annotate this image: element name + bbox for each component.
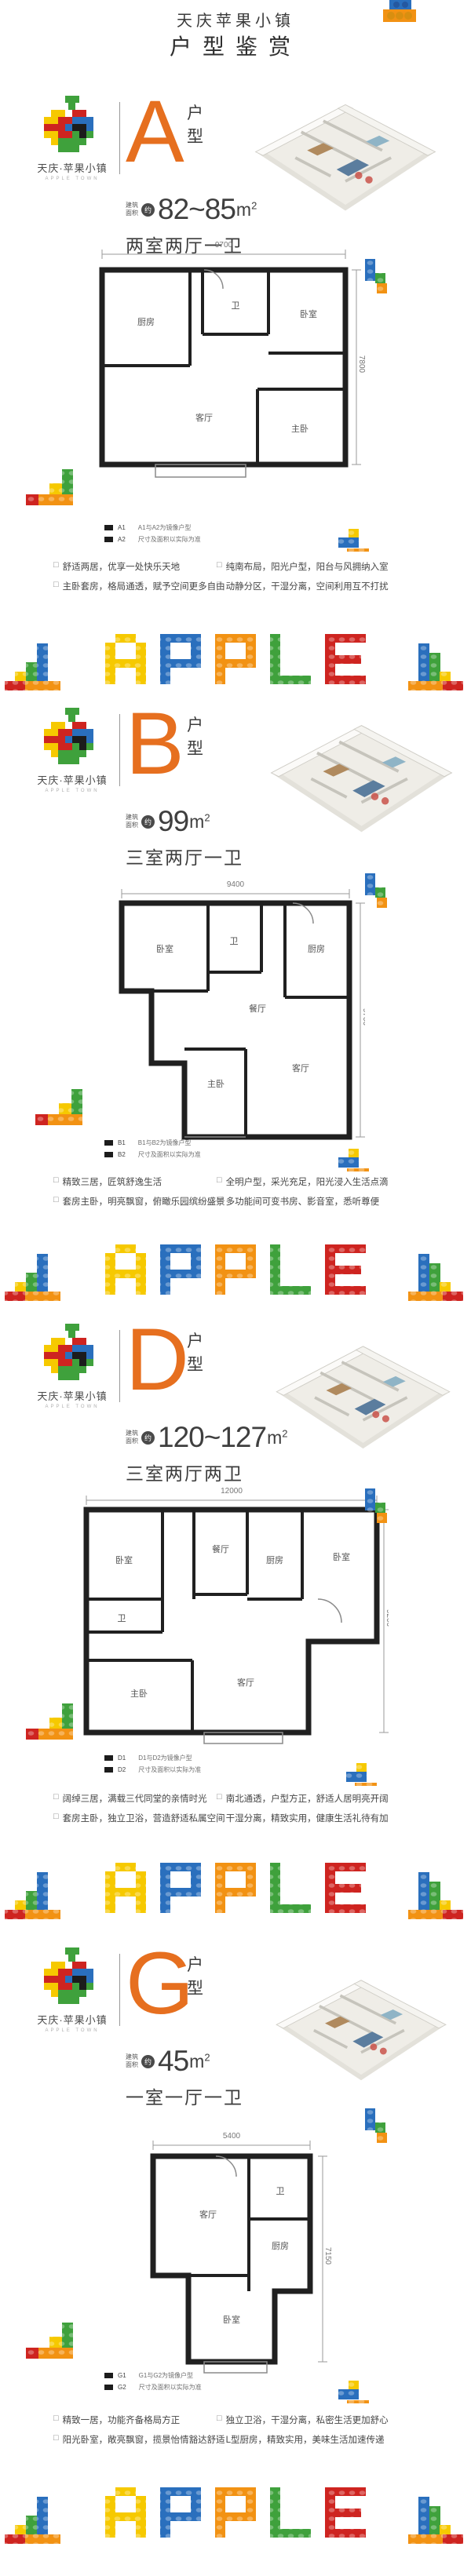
legend-square-icon — [104, 1140, 113, 1146]
svg-text:9200: 9200 — [385, 1609, 389, 1627]
feature-item: □舒适两居，优享一处快乐天地 — [53, 560, 217, 573]
apple-logo-icon — [43, 1324, 101, 1380]
legend-row: A1 A1与A2为镜像户型 — [104, 523, 201, 532]
svg-text:餐厅: 餐厅 — [249, 1003, 266, 1014]
floor-plan-d: 12000 9200 卧室 餐厅 厨房 卧室 卫 主卧 客厅 — [75, 1481, 389, 1756]
section-unit-b: 天庆·苹果小镇 APPLE TOWN B 户型 建筑面积 约 99 m2 三室两… — [0, 705, 471, 1230]
checkbox-icon: □ — [53, 1812, 59, 1821]
unit-type-label: 户型 — [187, 714, 204, 762]
lego-side-icon — [365, 1488, 387, 1523]
section-unit-d: 天庆·苹果小镇 APPLE TOWN D 户型 建筑面积 约 120~127 m… — [0, 1321, 471, 1846]
lego-stair-icon — [35, 1089, 90, 1125]
feature-item: □套房主卧，独立卫浴，营造舒适私属空间 — [53, 1812, 217, 1824]
dimension-right: 9200 — [379, 1510, 389, 1733]
brand-name: 天庆·苹果小镇 — [31, 160, 113, 175]
brand-name: 天庆·苹果小镇 — [31, 1388, 113, 1403]
dimension-top: 9400 — [122, 880, 349, 898]
lego-mini-icon — [336, 1149, 369, 1172]
apple-lego-banner — [0, 1847, 471, 1929]
approx-badge: 约 — [141, 203, 155, 217]
brand-logo: 天庆·苹果小镇 APPLE TOWN — [31, 1947, 113, 2033]
svg-text:12000: 12000 — [221, 1487, 243, 1496]
legend-row: B1 B1与B2为镜像户型 — [104, 1139, 201, 1147]
floor-plan-b: 9400 9700 卧室 卫 厨房 餐厅 主卧 客厅 — [106, 873, 365, 1144]
brand-name-en: APPLE TOWN — [31, 177, 113, 181]
unit-type-label: 户型 — [187, 1954, 204, 2002]
section-unit-g: 天庆·苹果小镇 APPLE TOWN G 户型 建筑面积 约 45 m2 一室一… — [0, 1944, 471, 2470]
feature-item: □动静分区，干湿分离，空间利用互不打扰 — [217, 580, 446, 592]
area-prefix-label: 建筑面积 — [126, 1430, 138, 1445]
room-labels: 卧室 卫 厨房 餐厅 主卧 客厅 — [156, 937, 325, 1089]
unit-letter: B — [126, 700, 184, 788]
feature-item: □南北通透，户型方正，舒适人居明亮开阔 — [217, 1792, 446, 1805]
legend-square-icon — [104, 1755, 113, 1761]
unit-3d-render — [239, 99, 451, 217]
checkbox-icon: □ — [53, 2433, 59, 2443]
approx-badge: 约 — [141, 2055, 155, 2068]
svg-text:卧室: 卧室 — [223, 2314, 240, 2325]
approx-badge: 约 — [141, 815, 155, 829]
apple-logo-icon — [43, 708, 101, 764]
brand-name: 天庆·苹果小镇 — [31, 772, 113, 787]
lego-side-icon — [365, 2108, 387, 2143]
brand-name-en: APPLE TOWN — [31, 1405, 113, 1409]
room-labels: 卧室 餐厅 厨房 卧室 卫 主卧 客厅 — [115, 1543, 350, 1699]
dimension-right: 9700 — [356, 903, 365, 1137]
brand-logo: 天庆·苹果小镇 APPLE TOWN — [31, 708, 113, 793]
area-value: 82~85 — [158, 193, 235, 226]
checkbox-icon: □ — [217, 2414, 222, 2423]
area-prefix-label: 建筑面积 — [126, 2053, 138, 2069]
checkbox-icon: □ — [53, 560, 59, 570]
unit-3d-render — [265, 706, 458, 851]
feature-list: □精致一居，功能齐备格局方正 □阳光卧室，敞亮飘窗，揽景怡情豁达舒适 □独立卫浴… — [53, 2414, 446, 2446]
unit-3d-render — [271, 1954, 451, 2107]
legend-square-icon — [104, 2373, 113, 2378]
apple-lego-banner — [0, 618, 471, 701]
unit-letter: A — [126, 88, 184, 176]
feature-item: □多功能间可变书房、影音室，悉听尊便 — [217, 1195, 446, 1208]
checkbox-icon: □ — [53, 580, 59, 589]
plan-walls — [153, 2156, 310, 2373]
apple-lego-banner — [0, 1229, 471, 1311]
svg-text:客厅: 客厅 — [292, 1062, 309, 1073]
lego-mini-icon — [344, 1763, 377, 1787]
svg-text:9400: 9400 — [227, 880, 245, 889]
feature-item: □全明户型，采光充足，阳光浸入生活点滴 — [217, 1175, 446, 1188]
svg-text:厨房: 厨房 — [272, 2241, 289, 2251]
area-row: 建筑面积 约 45 m2 — [126, 2045, 210, 2078]
plan-walls — [102, 270, 345, 477]
svg-text:卫: 卫 — [230, 937, 239, 946]
svg-text:卫: 卫 — [118, 1614, 126, 1623]
svg-text:9700: 9700 — [215, 241, 233, 250]
checkbox-icon: □ — [217, 2433, 222, 2443]
svg-text:客厅: 客厅 — [237, 1677, 254, 1688]
checkbox-icon: □ — [217, 580, 222, 589]
plan-legend: G1 G1与G2为镜像户型 G2 尺寸及面积以实际为准 — [104, 2371, 202, 2395]
area-row: 建筑面积 约 99 m2 — [126, 805, 210, 838]
brand-name: 天庆·苹果小镇 — [31, 2012, 113, 2027]
lego-side-icon — [365, 873, 387, 908]
legend-row: A2 尺寸及面积以实际为准 — [104, 535, 201, 544]
plan-legend: D1 D1与D2为镜像户型 D2 尺寸及面积以实际为准 — [104, 1754, 201, 1777]
svg-text:卧室: 卧室 — [333, 1551, 350, 1562]
section-unit-a: 天庆·苹果小镇 APPLE TOWN A 户型 建筑面积 约 82~85 m2 … — [0, 93, 471, 618]
lego-stair-icon — [26, 2323, 81, 2359]
apple-logo-icon — [43, 1947, 101, 2004]
feature-item: □独立卫浴，干湿分离，私密生活更加舒心 — [217, 2414, 446, 2426]
poster-page: 天庆苹果小镇 户型鉴赏 天庆·苹果小镇 APPLE TOWN A 户型 建筑面积… — [0, 0, 471, 2576]
checkbox-icon: □ — [53, 1792, 59, 1802]
checkbox-icon: □ — [217, 560, 222, 570]
area-row: 建筑面积 约 120~127 m2 — [126, 1421, 287, 1454]
area-row: 建筑面积 约 82~85 m2 — [126, 193, 257, 226]
brand-logo: 天庆·苹果小镇 APPLE TOWN — [31, 96, 113, 181]
svg-text:厨房: 厨房 — [308, 944, 325, 954]
legend-square-icon — [104, 525, 113, 530]
vertical-divider — [119, 714, 120, 786]
apple-lego-banner — [0, 2472, 471, 2554]
lego-stair-icon — [26, 469, 81, 505]
checkbox-icon: □ — [53, 1195, 59, 1204]
unit-type-label: 户型 — [187, 102, 204, 150]
unit-letter: G — [126, 1940, 194, 2028]
area-prefix-label: 建筑面积 — [126, 814, 138, 829]
feature-item: □主卧套房，格局通透，赋予空间更多自由 — [53, 580, 217, 592]
svg-text:9700: 9700 — [361, 1008, 365, 1026]
lego-mini-icon — [336, 2381, 369, 2404]
svg-text:卧室: 卧室 — [300, 308, 317, 319]
vertical-divider — [119, 1954, 120, 2026]
feature-item: □精致一居，功能齐备格局方正 — [53, 2414, 217, 2426]
dimension-top: 12000 — [86, 1487, 377, 1505]
unit-type-label: 户型 — [187, 1330, 204, 1378]
legend-row: G1 G1与G2为镜像户型 — [104, 2371, 202, 2380]
svg-text:卫: 卫 — [276, 2187, 285, 2196]
brand-name-en: APPLE TOWN — [31, 789, 113, 793]
svg-text:卧室: 卧室 — [115, 1554, 133, 1565]
area-prefix-label: 建筑面积 — [126, 202, 138, 217]
brand-name-en: APPLE TOWN — [31, 2028, 113, 2033]
area-value: 99 — [158, 805, 188, 838]
vertical-divider — [119, 1330, 120, 1402]
legend-square-icon — [104, 537, 113, 542]
feature-list: □舒适两居，优享一处快乐天地 □主卧套房，格局通透，赋予空间更多自由 □纯南布局… — [53, 560, 446, 592]
svg-text:客厅: 客厅 — [195, 412, 213, 423]
feature-item: □纯南布局，阳光户型，阳台与风拥纳入室 — [217, 560, 446, 573]
checkbox-icon: □ — [53, 2414, 59, 2423]
plan-legend: A1 A1与A2为镜像户型 A2 尺寸及面积以实际为准 — [104, 523, 201, 547]
page-subtitle: 户型鉴赏 — [0, 30, 471, 61]
floor-plan-a: 9700 7800 厨房 卫 卧室 客厅 主卧 — [86, 234, 369, 505]
svg-text:主卧: 主卧 — [130, 1689, 148, 1699]
legend-row: B2 尺寸及面积以实际为准 — [104, 1150, 201, 1159]
area-unit: m2 — [267, 1427, 287, 1448]
feature-item: □L型厨房，精致实用，美味生活加速传递 — [217, 2433, 446, 2446]
lego-side-icon — [365, 259, 387, 293]
area-value: 45 — [158, 2045, 188, 2078]
svg-text:卫: 卫 — [232, 301, 240, 311]
feature-item: □阳光卧室，敞亮飘窗，揽景怡情豁达舒适 — [53, 2433, 217, 2446]
room-labels: 厨房 卫 卧室 客厅 主卧 — [137, 301, 317, 434]
feature-item: □套房主卧，明亮飘窗，俯瞰乐园缤纷盛景 — [53, 1195, 217, 1208]
area-value: 120~127 — [158, 1421, 266, 1454]
feature-item: □阔绰三居，满载三代同堂的亲情时光 — [53, 1792, 217, 1805]
floor-plan-g: 5400 7150 客厅 卫 厨房 卧室 — [130, 2125, 334, 2388]
feature-item: □精致三居，匠筑舒逸生活 — [53, 1175, 217, 1188]
rooms-summary: 三室两厅一卫 — [126, 843, 243, 869]
checkbox-icon: □ — [53, 1175, 59, 1185]
unit-letter: D — [126, 1316, 189, 1404]
feature-list: □阔绰三居，满载三代同堂的亲情时光 □套房主卧，独立卫浴，营造舒适私属空间 □南… — [53, 1792, 446, 1824]
vertical-divider — [119, 102, 120, 174]
area-unit: m2 — [189, 2051, 210, 2072]
dimension-top: 9700 — [102, 241, 345, 259]
svg-text:厨房: 厨房 — [137, 317, 155, 327]
svg-text:客厅: 客厅 — [199, 2209, 217, 2220]
plan-legend: B1 B1与B2为镜像户型 B2 尺寸及面积以实际为准 — [104, 1139, 201, 1162]
feature-item: □干湿分离，精致实用，健康生活礼待有加 — [217, 1812, 446, 1824]
lego-mini-icon — [336, 529, 369, 552]
svg-text:7800: 7800 — [357, 355, 366, 373]
area-unit: m2 — [236, 199, 257, 220]
svg-text:餐厅: 餐厅 — [212, 1543, 229, 1554]
svg-text:厨房: 厨房 — [266, 1555, 283, 1565]
legend-square-icon — [104, 1767, 113, 1773]
svg-text:5400: 5400 — [223, 2132, 241, 2141]
area-unit: m2 — [189, 811, 210, 833]
checkbox-icon: □ — [217, 1195, 222, 1204]
legend-row: G2 尺寸及面积以实际为准 — [104, 2383, 202, 2392]
unit-3d-render — [271, 1327, 455, 1468]
brand-logo: 天庆·苹果小镇 APPLE TOWN — [31, 1324, 113, 1409]
dimension-right: 7800 — [352, 270, 366, 465]
feature-list: □精致三居，匠筑舒逸生活 □套房主卧，明亮飘窗，俯瞰乐园缤纷盛景 □全明户型，采… — [53, 1175, 446, 1208]
svg-text:7150: 7150 — [323, 2247, 332, 2265]
header-lego-icon — [382, 0, 424, 24]
dimension-top: 5400 — [153, 2132, 310, 2150]
legend-row: D1 D1与D2为镜像户型 — [104, 1754, 201, 1762]
legend-square-icon — [104, 2385, 113, 2390]
svg-text:主卧: 主卧 — [291, 424, 309, 434]
rooms-summary: 一室一厅一卫 — [126, 2082, 243, 2109]
checkbox-icon: □ — [217, 1175, 222, 1185]
svg-text:卧室: 卧室 — [156, 943, 173, 954]
legend-square-icon — [104, 1152, 113, 1157]
svg-text:主卧: 主卧 — [207, 1079, 225, 1089]
checkbox-icon: □ — [217, 1812, 222, 1821]
legend-row: D2 尺寸及面积以实际为准 — [104, 1765, 201, 1774]
dimension-right: 7150 — [318, 2156, 332, 2362]
approx-badge: 约 — [141, 1431, 155, 1445]
apple-logo-icon — [43, 96, 101, 152]
plan-walls — [86, 1510, 377, 1743]
lego-stair-icon — [26, 1703, 81, 1740]
checkbox-icon: □ — [217, 1792, 222, 1802]
